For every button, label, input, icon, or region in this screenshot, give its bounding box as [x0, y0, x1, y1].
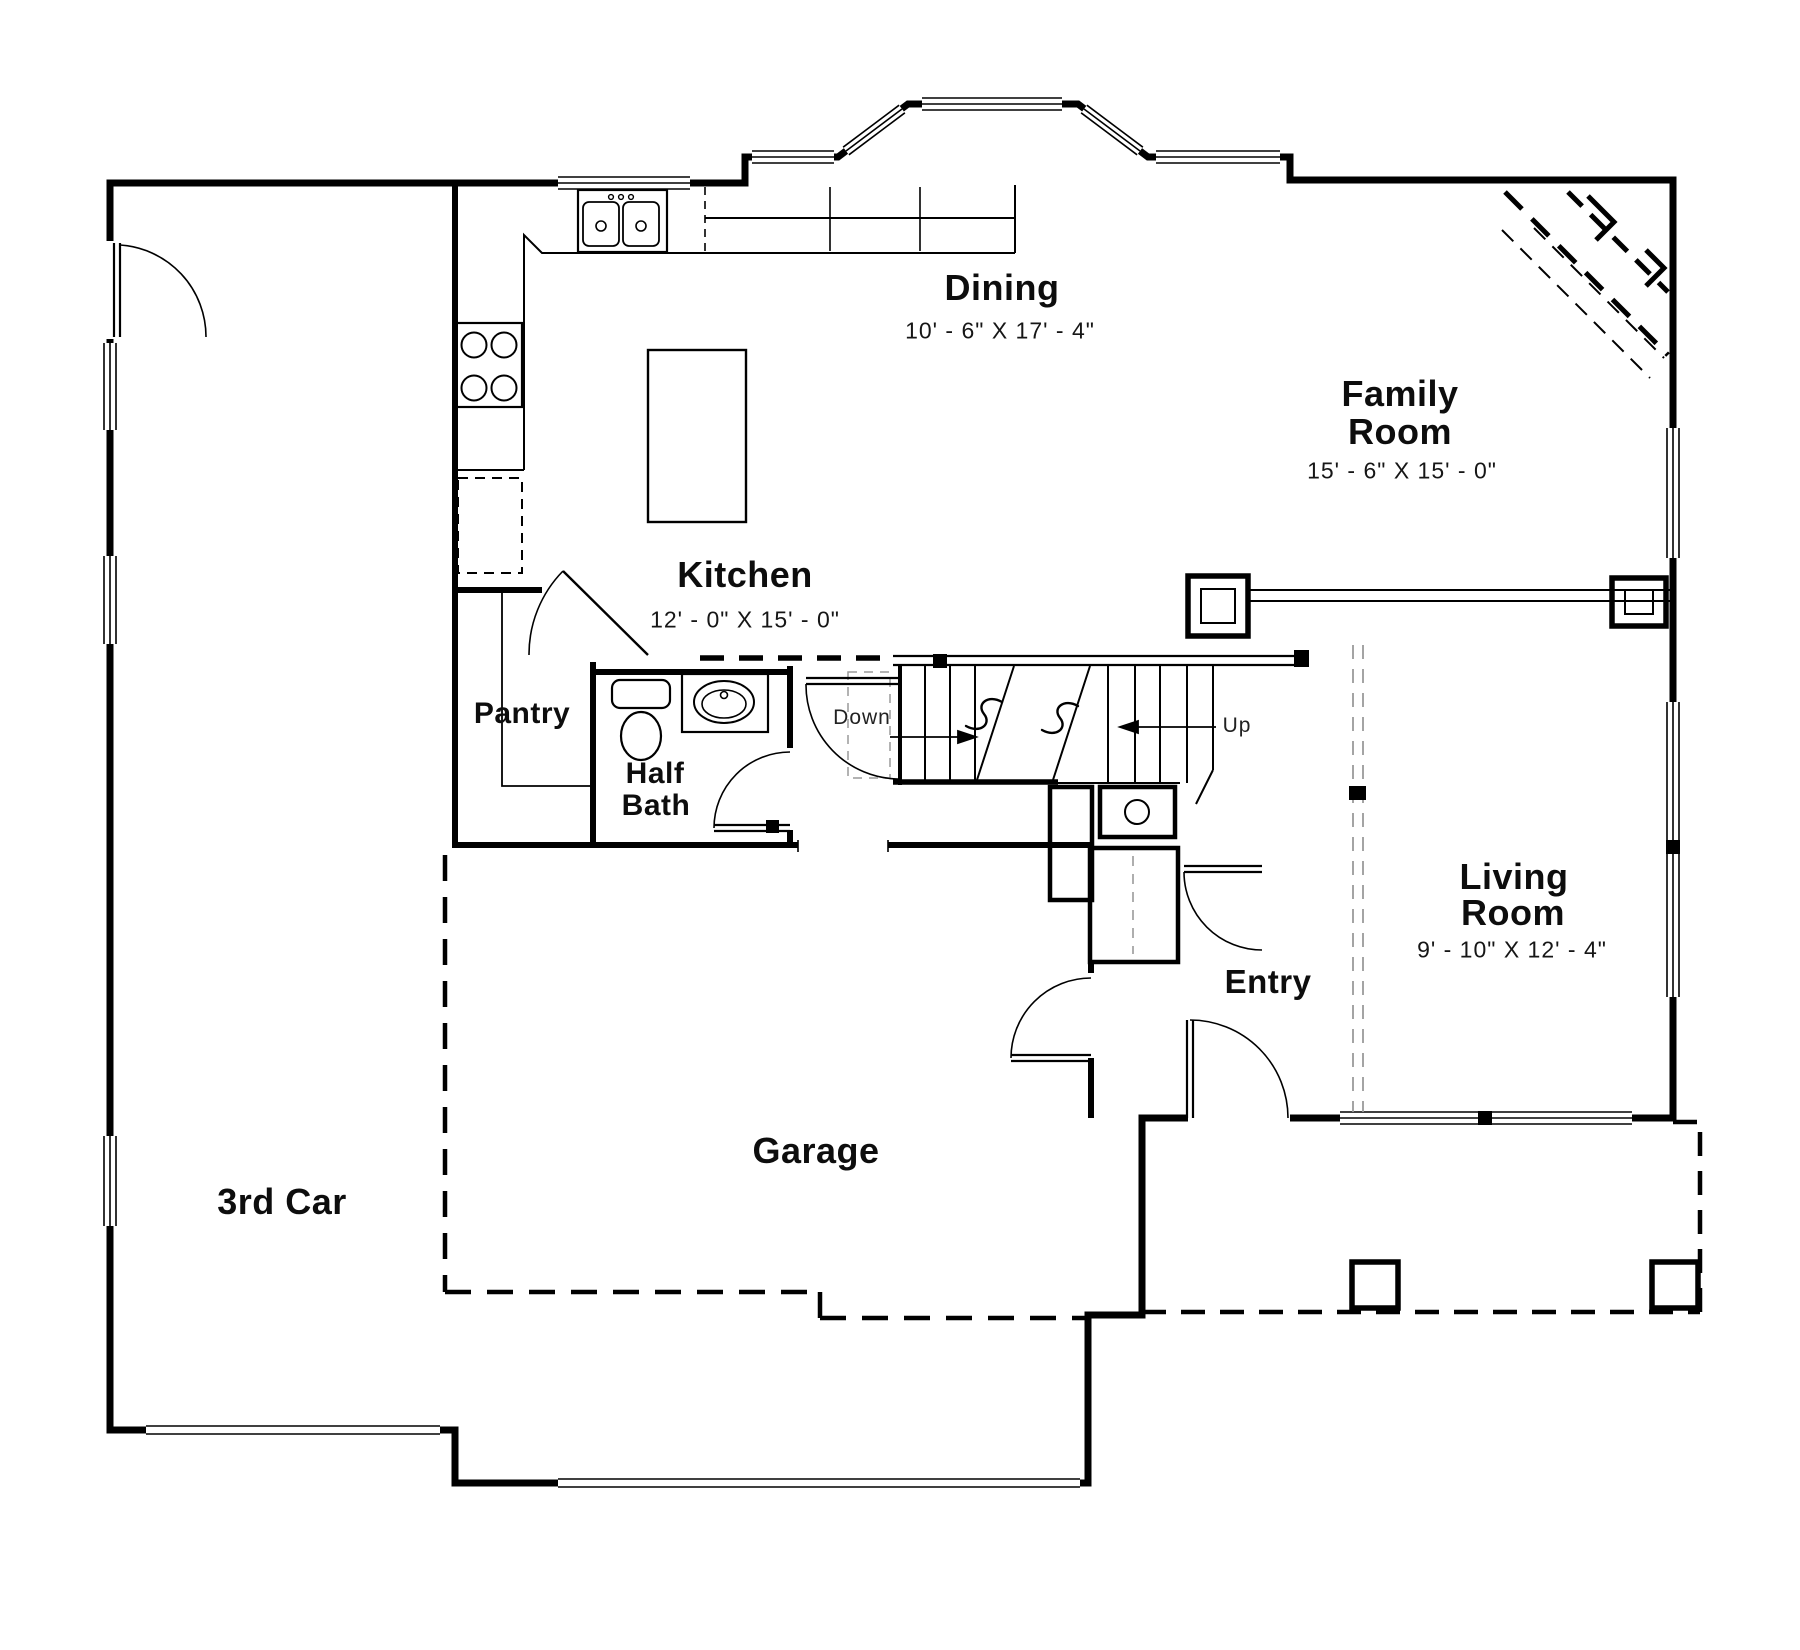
exterior-walls	[110, 104, 1673, 1483]
floor-plan-svg	[0, 0, 1800, 1650]
label-stairs-up: Up	[1223, 714, 1252, 738]
down-arrowhead	[958, 731, 976, 743]
label-kitchen-dims: 12' - 0" X 15' - 0"	[650, 607, 840, 634]
windows	[104, 98, 1679, 1487]
bay-diagonal-openings	[846, 109, 1140, 151]
label-family-line2: Room	[1348, 411, 1452, 453]
label-stairs-down: Down	[833, 706, 891, 730]
up-arrowhead	[1120, 721, 1138, 733]
counter-front-edge	[455, 235, 1015, 470]
kitchen-sink	[578, 190, 667, 252]
vanity-sink	[682, 674, 768, 732]
corner-fireplace	[1502, 192, 1668, 378]
half-bath-fixtures	[612, 674, 768, 760]
label-third-car: 3rd Car	[217, 1181, 347, 1223]
toilet	[612, 680, 670, 760]
kitchen-island	[648, 350, 746, 522]
label-garage: Garage	[752, 1130, 879, 1172]
floor-plan: Dining 10' - 6" X 17' - 4" Family Room 1…	[0, 0, 1800, 1650]
label-kitchen: Kitchen	[677, 554, 813, 596]
counter-right-run	[705, 185, 1015, 253]
stair-treads-right	[1108, 666, 1187, 783]
doors	[114, 243, 1288, 1118]
label-entry: Entry	[1225, 963, 1312, 1001]
stair-north-wall	[893, 656, 1294, 665]
label-dining-dims: 10' - 6" X 17' - 4"	[905, 318, 1095, 345]
label-dining: Dining	[945, 267, 1060, 309]
label-halfbath-line2: Bath	[622, 789, 691, 823]
interior-openings	[783, 748, 1100, 1058]
break-s-glyph-1	[966, 699, 1002, 729]
stair-break-lines	[976, 666, 1090, 783]
porch-post-2	[1652, 1262, 1698, 1308]
wall-openings	[102, 96, 1681, 1491]
cooktop	[456, 323, 522, 407]
front-door	[1187, 1020, 1288, 1118]
porch	[1142, 1122, 1700, 1312]
label-pantry: Pantry	[474, 697, 570, 731]
entry-coat-closet	[1090, 848, 1178, 962]
label-family-line1: Family	[1341, 373, 1458, 415]
stair-treads-left	[925, 666, 975, 783]
side-exterior-door	[114, 243, 206, 337]
garage-entry-door	[1011, 978, 1091, 1061]
half-bath-door	[714, 752, 790, 833]
pantry-shelf	[502, 592, 591, 786]
entry-closet-door	[1184, 866, 1262, 950]
label-living-dims: 9' - 10" X 12' - 4"	[1417, 937, 1607, 964]
utility-closet	[1100, 787, 1175, 837]
porch-post-1	[1352, 1262, 1398, 1308]
understair-closets	[1050, 787, 1178, 962]
kitchen-hall-door	[529, 571, 648, 655]
refrigerator	[458, 478, 522, 573]
garage-dashed-boundary	[445, 855, 1088, 1318]
divider-cap	[1349, 786, 1366, 800]
label-family-dims: 15' - 6" X 15' - 0"	[1307, 458, 1497, 485]
label-living-line2: Room	[1461, 892, 1565, 934]
entry-living-divider	[1353, 645, 1363, 1112]
utility-fixture-icon	[1125, 800, 1149, 824]
kitchen-fixtures	[455, 185, 1015, 786]
column-left	[1188, 576, 1248, 636]
label-halfbath-line1: Half	[626, 757, 685, 791]
